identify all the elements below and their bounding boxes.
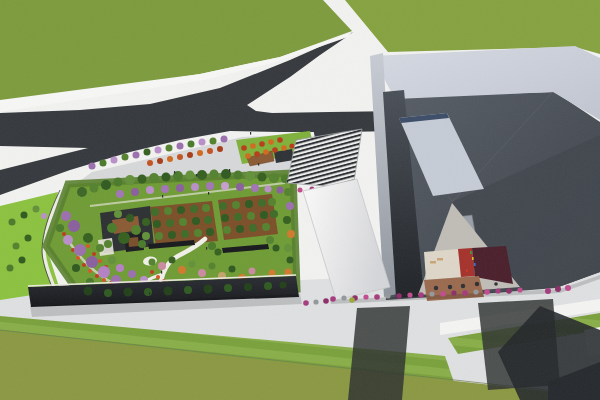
render-canvas — [0, 0, 600, 400]
render-grain-overlay — [0, 0, 600, 400]
architectural-render — [0, 0, 600, 400]
